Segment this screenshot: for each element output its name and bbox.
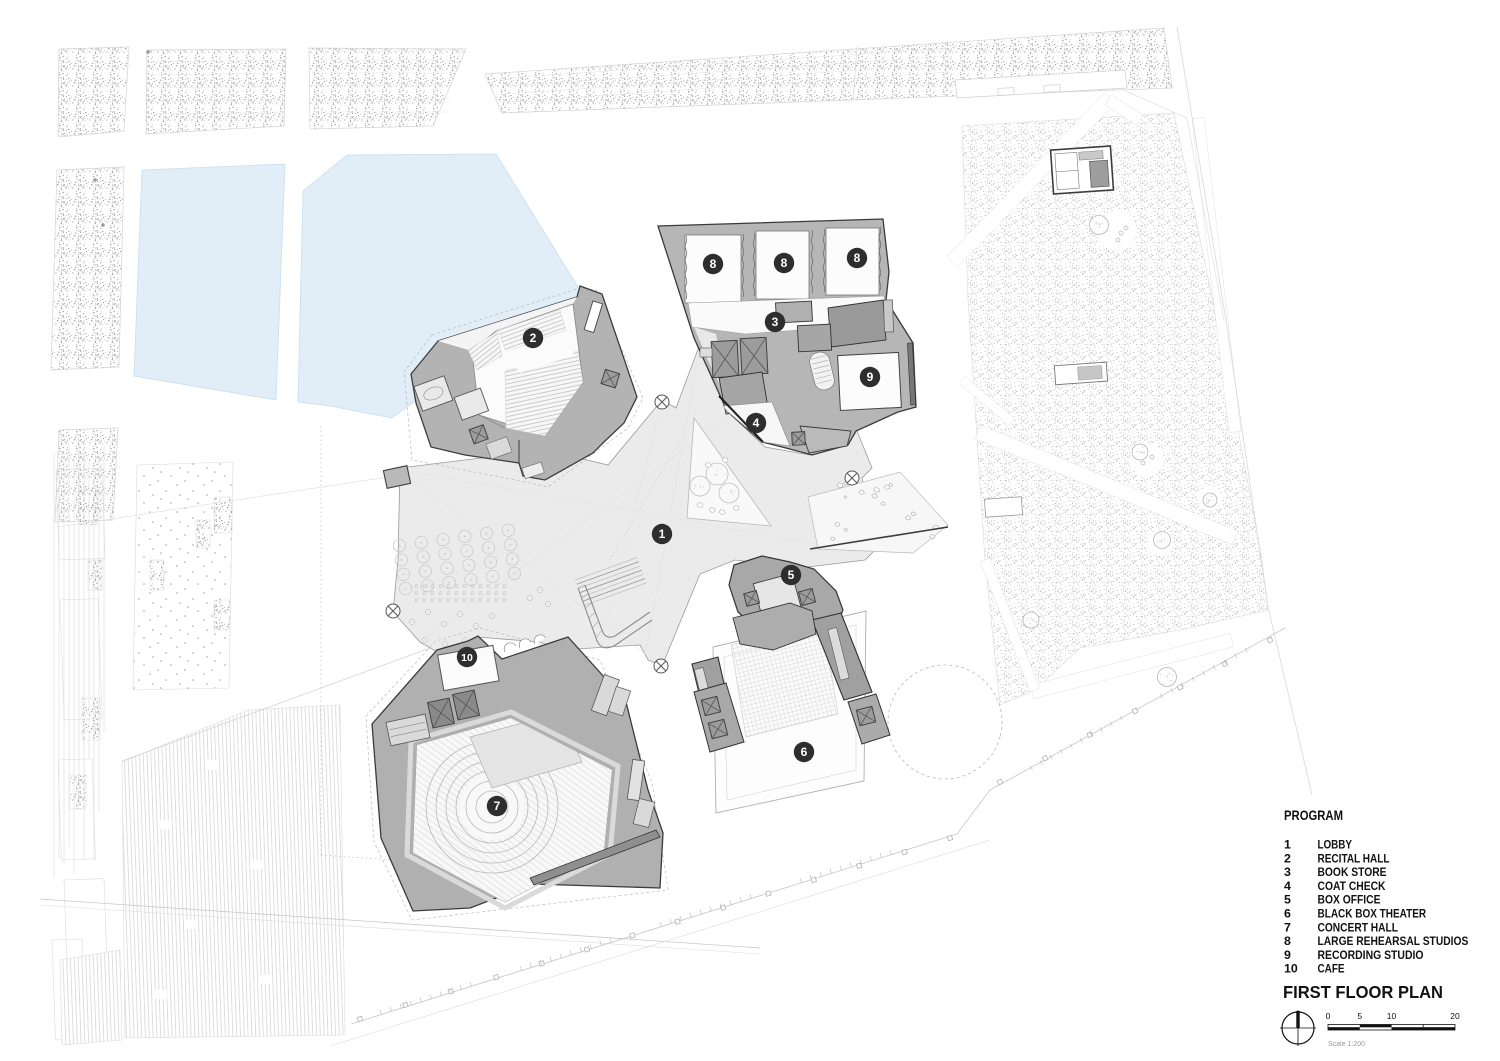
svg-text:20: 20	[1450, 1011, 1460, 1021]
svg-text:7: 7	[1284, 920, 1291, 934]
svg-text:9: 9	[867, 370, 874, 384]
svg-text:5: 5	[1284, 893, 1291, 907]
svg-text:BOX OFFICE: BOX OFFICE	[1318, 893, 1381, 907]
svg-text:6: 6	[801, 745, 808, 759]
svg-text:1: 1	[1284, 838, 1291, 852]
svg-text:2: 2	[1284, 851, 1291, 865]
svg-text:0: 0	[1326, 1011, 1331, 1021]
svg-text:3: 3	[1284, 865, 1291, 879]
svg-text:7: 7	[494, 799, 501, 813]
svg-text:RECORDING STUDIO: RECORDING STUDIO	[1318, 948, 1424, 962]
svg-text:FIRST FLOOR PLAN: FIRST FLOOR PLAN	[1283, 982, 1443, 1002]
svg-text:Scale 1:200: Scale 1:200	[1328, 1041, 1365, 1048]
svg-text:8: 8	[854, 251, 861, 265]
svg-text:1: 1	[659, 527, 666, 541]
svg-text:9: 9	[1284, 948, 1291, 962]
svg-text:8: 8	[710, 257, 717, 271]
svg-text:PROGRAM: PROGRAM	[1284, 807, 1343, 823]
svg-text:BOOK STORE: BOOK STORE	[1318, 865, 1387, 879]
svg-text:LOBBY: LOBBY	[1318, 838, 1353, 852]
svg-text:COAT CHECK: COAT CHECK	[1318, 879, 1386, 893]
svg-text:CONCERT HALL: CONCERT HALL	[1318, 920, 1399, 934]
svg-text:LARGE REHEARSAL STUDIOS: LARGE REHEARSAL STUDIOS	[1318, 934, 1469, 948]
svg-text:10: 10	[1284, 962, 1298, 976]
svg-text:4: 4	[753, 416, 760, 430]
svg-text:4: 4	[1284, 879, 1291, 893]
svg-text:CAFE: CAFE	[1318, 962, 1345, 976]
svg-text:2: 2	[530, 331, 537, 345]
svg-text:10: 10	[1387, 1011, 1397, 1021]
svg-text:6: 6	[1284, 907, 1291, 921]
svg-text:8: 8	[781, 256, 788, 270]
svg-text:8: 8	[1284, 934, 1291, 948]
svg-text:3: 3	[772, 315, 779, 329]
svg-text:5: 5	[788, 568, 795, 582]
svg-text:BLACK BOX THEATER: BLACK BOX THEATER	[1318, 907, 1427, 921]
svg-text:10: 10	[461, 652, 473, 664]
svg-text:5: 5	[1357, 1011, 1362, 1021]
svg-text:RECITAL HALL: RECITAL HALL	[1318, 851, 1390, 865]
